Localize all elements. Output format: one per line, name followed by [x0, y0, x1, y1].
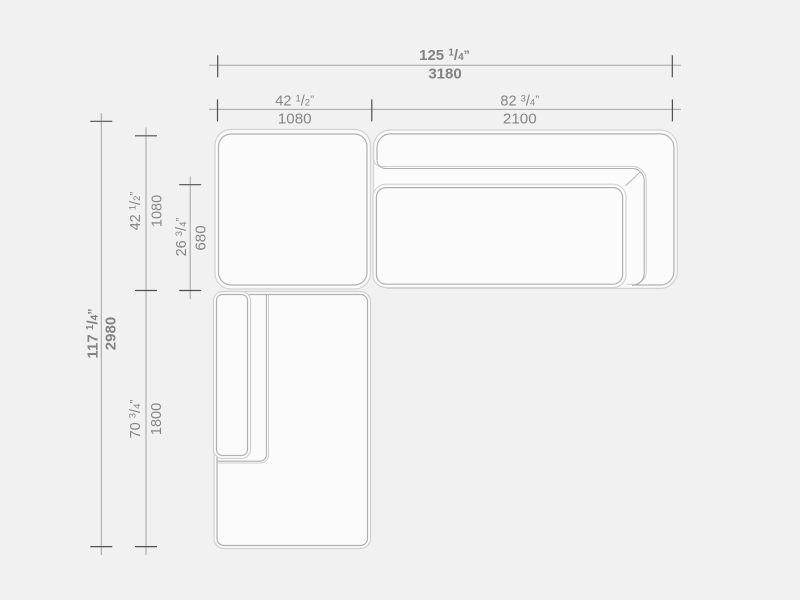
svg-text:3180: 3180	[428, 66, 461, 83]
svg-text:1080: 1080	[150, 195, 166, 227]
svg-text:2100: 2100	[503, 110, 537, 127]
svg-text:2980: 2980	[103, 317, 120, 350]
svg-text:1080: 1080	[278, 110, 312, 127]
svg-text:1800: 1800	[149, 403, 165, 435]
svg-text:680: 680	[192, 225, 209, 250]
